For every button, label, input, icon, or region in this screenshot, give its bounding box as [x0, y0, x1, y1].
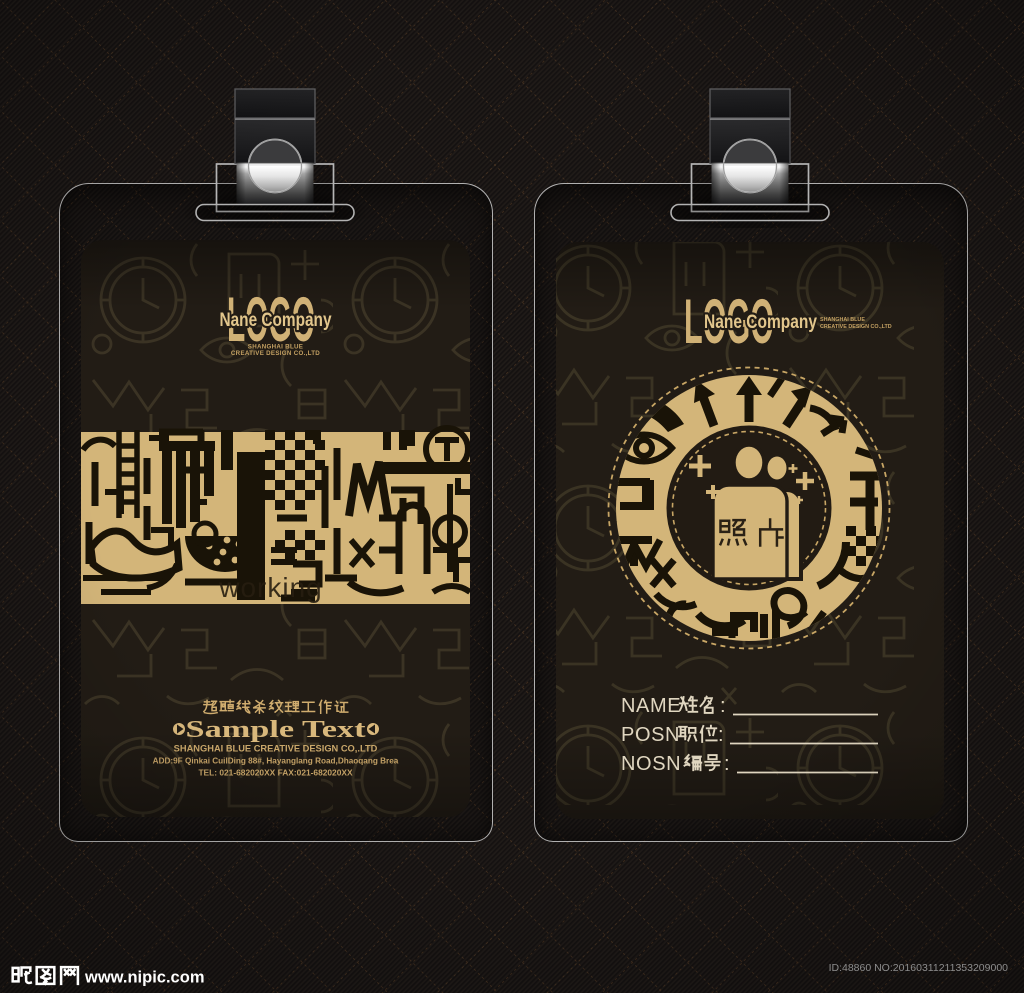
svg-text:Sample Text: Sample Text — [186, 717, 366, 743]
svg-text:www.nipic.com: www.nipic.com — [84, 969, 205, 987]
svg-text:Nane Company: Nane Company — [704, 311, 817, 333]
svg-text:SHANGHAI BLUE CREATIVE DESIGN: SHANGHAI BLUE CREATIVE DESIGN CO,.LTD — [174, 744, 378, 754]
svg-text:NOSN: NOSN — [621, 753, 681, 775]
svg-text:Nane Company: Nane Company — [220, 309, 332, 331]
svg-text:CREATIVE DESIGN CO.,LTD: CREATIVE DESIGN CO.,LTD — [231, 350, 320, 357]
svg-text::: : — [724, 753, 730, 775]
svg-text:POSN: POSN — [621, 724, 680, 746]
svg-text:CREATIVE DESIGN CO.,LTD: CREATIVE DESIGN CO.,LTD — [820, 324, 892, 330]
svg-text:SHANGHAI BLUE: SHANGHAI BLUE — [820, 317, 865, 323]
svg-text:working: working — [218, 572, 322, 603]
svg-text:NAME: NAME — [621, 695, 681, 717]
svg-text:ADD:9F Qinkai CuilDing 88#, Ha: ADD:9F Qinkai CuilDing 88#, Hayanglang R… — [153, 757, 399, 766]
svg-text::: : — [718, 724, 724, 746]
svg-text:TEL: 021-682020XX FAX:021-682: TEL: 021-682020XX FAX:021-682020XX — [198, 768, 353, 778]
svg-text::: : — [720, 695, 726, 717]
